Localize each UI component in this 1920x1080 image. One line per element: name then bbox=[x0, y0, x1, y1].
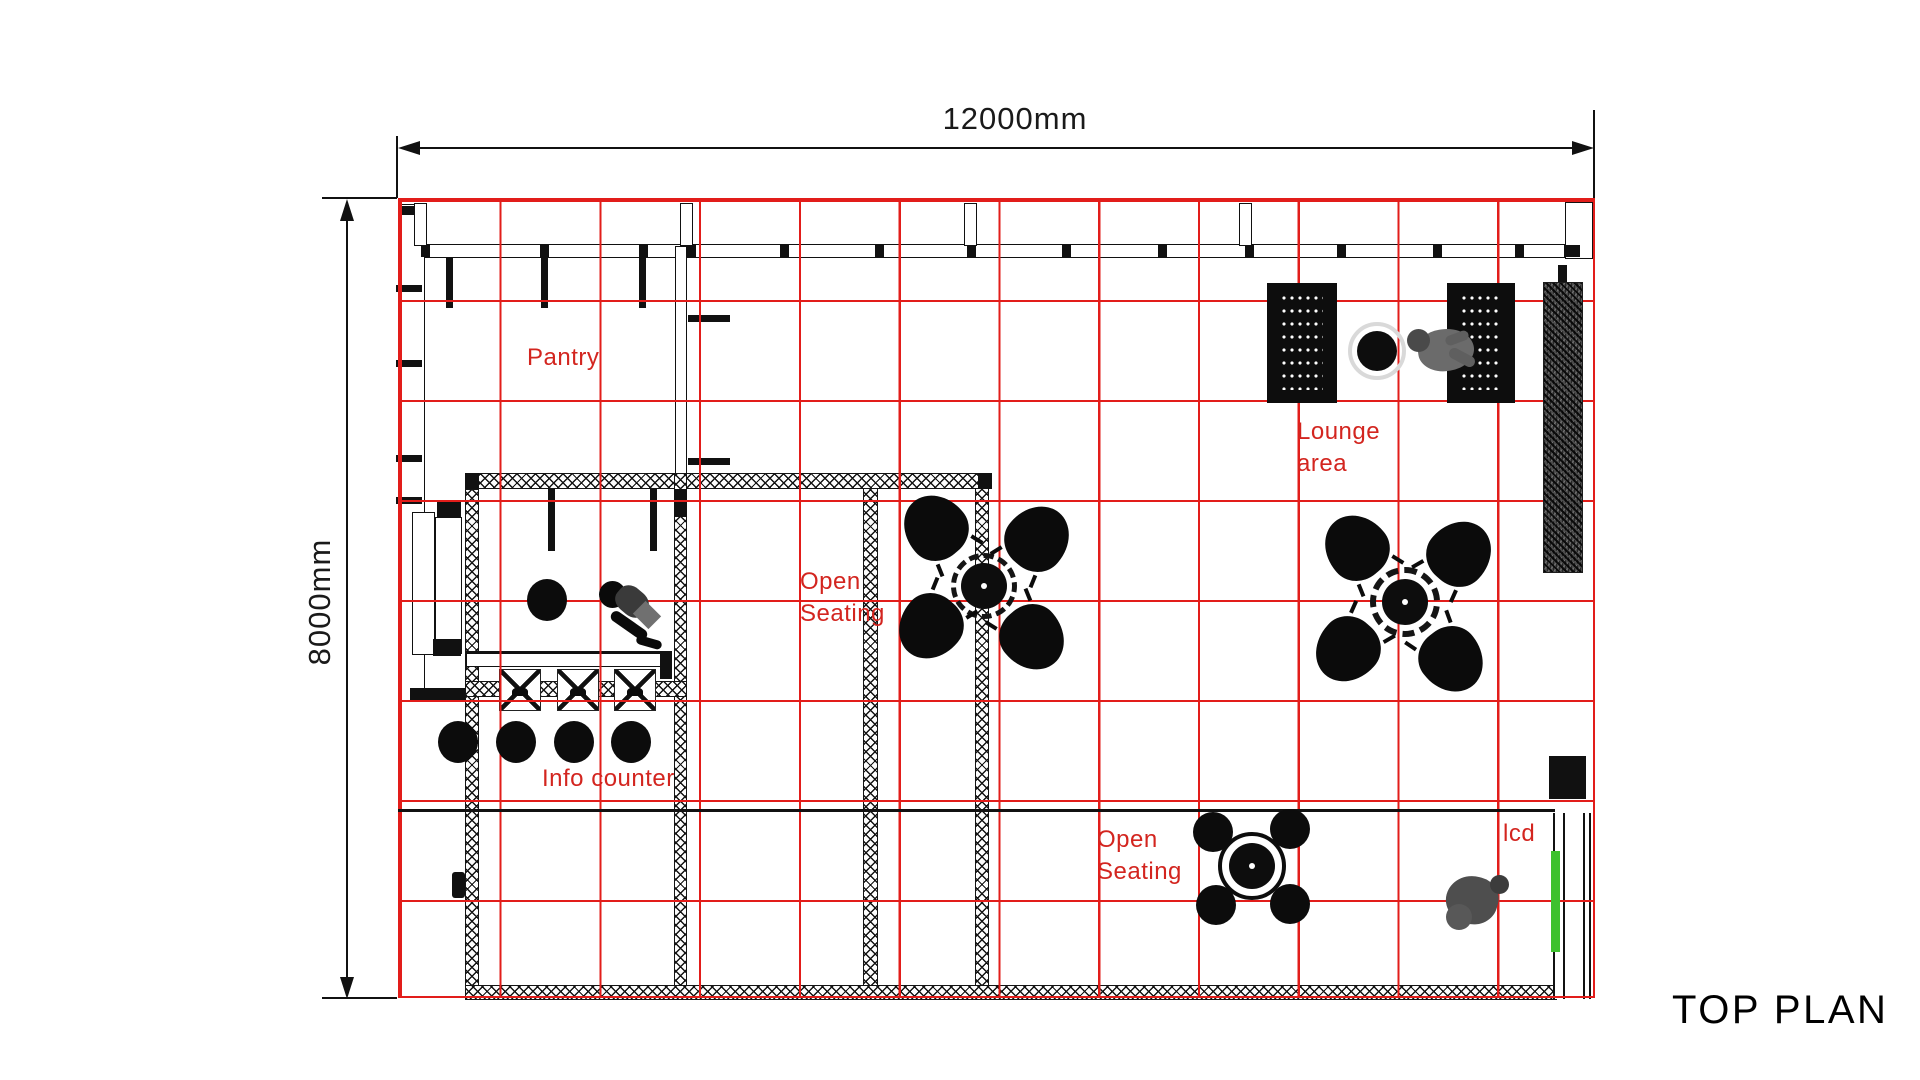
table-center-dot bbox=[1249, 863, 1255, 869]
dimension-line-vertical bbox=[346, 216, 348, 986]
label-info-counter: Info counter bbox=[542, 763, 675, 795]
extension-line bbox=[396, 136, 398, 198]
label-line: Seating bbox=[800, 598, 885, 630]
stool bbox=[438, 721, 478, 763]
stool bbox=[496, 721, 536, 763]
dimension-height-label: 8000mm bbox=[302, 502, 334, 702]
extension-line bbox=[1593, 110, 1595, 198]
extension-line bbox=[322, 197, 397, 199]
chair-round bbox=[1270, 809, 1310, 849]
wall-tick bbox=[1558, 265, 1567, 283]
drawing-title: TOP PLAN bbox=[1672, 988, 1888, 1033]
label-pantry: Pantry bbox=[527, 342, 599, 374]
label-open-seating-2: Open Seating bbox=[1097, 824, 1182, 888]
arrow-right-icon bbox=[1572, 141, 1594, 155]
door-hinge bbox=[452, 872, 465, 898]
x-leg-table-base bbox=[627, 687, 643, 696]
person-head bbox=[1490, 875, 1509, 894]
person-leg bbox=[1446, 904, 1472, 930]
arrow-up-icon bbox=[340, 199, 354, 221]
chair-round bbox=[1196, 885, 1236, 925]
chair-round bbox=[1270, 884, 1310, 924]
label-lounge-area: Lounge area bbox=[1297, 416, 1380, 480]
dimension-width-label: 12000mm bbox=[865, 101, 1165, 137]
storage-box bbox=[1549, 756, 1586, 799]
sofa bbox=[1267, 283, 1337, 403]
zone-boundary-line bbox=[398, 809, 1555, 812]
stool bbox=[611, 721, 651, 763]
label-line: Open bbox=[1097, 824, 1182, 856]
arrow-down-icon bbox=[340, 977, 354, 999]
x-leg-table-base bbox=[512, 687, 528, 696]
label-open-seating-1: Open Seating bbox=[800, 566, 885, 630]
label-line: Seating bbox=[1097, 856, 1182, 888]
graphic-wall-strip bbox=[1543, 282, 1583, 573]
table-center-dot bbox=[981, 583, 987, 589]
extension-line bbox=[322, 997, 397, 999]
table-center-dot bbox=[1402, 599, 1408, 605]
arrow-left-icon bbox=[398, 141, 420, 155]
coffee-table bbox=[1357, 331, 1397, 371]
stool bbox=[554, 721, 594, 763]
top-plan-drawing: { "title": { "text": "TOP PLAN" }, "dime… bbox=[0, 0, 1920, 1080]
label-line: Lounge bbox=[1297, 416, 1380, 448]
stool bbox=[527, 579, 567, 621]
label-line: area bbox=[1297, 448, 1380, 480]
x-leg-table-base bbox=[570, 687, 586, 696]
person-head bbox=[1407, 329, 1430, 352]
label-lcd: lcd bbox=[1503, 818, 1535, 850]
lcd-screen bbox=[1551, 851, 1560, 952]
chair-round bbox=[1193, 812, 1233, 852]
sofa-tufting bbox=[1282, 296, 1323, 390]
label-line: Open bbox=[800, 566, 885, 598]
dimension-line-horizontal bbox=[420, 147, 1572, 149]
